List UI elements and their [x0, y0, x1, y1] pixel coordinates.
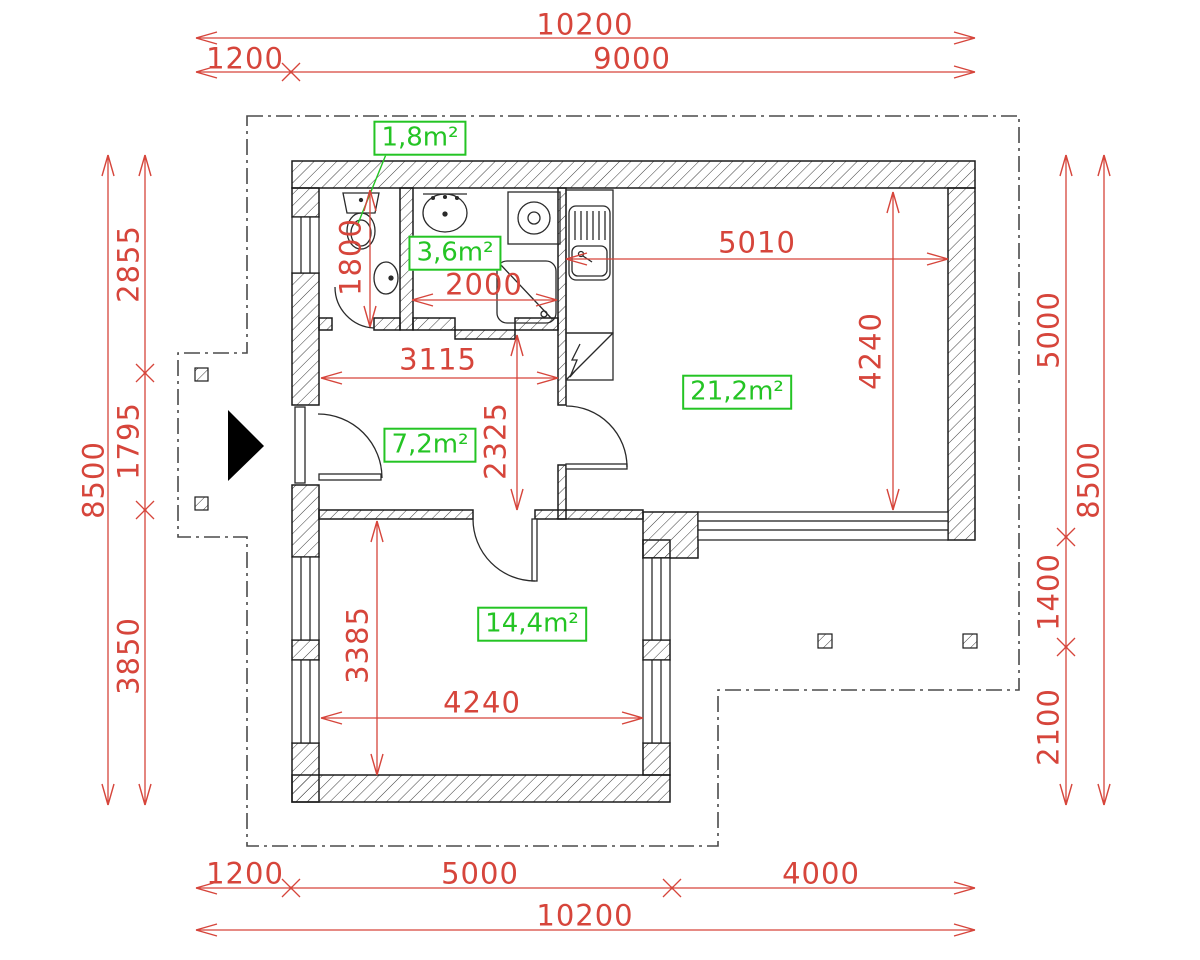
washing-machine-icon: [508, 192, 560, 244]
dim-kitchen-5010: 5010: [718, 229, 796, 258]
dim-top-9000: 9000: [593, 45, 671, 74]
dim-hall-3115: 3115: [399, 346, 477, 375]
floor-plan-drawing: [0, 0, 1200, 960]
dim-right-1400: 1400: [1035, 553, 1064, 631]
bedroom-door: [473, 519, 537, 581]
living-room-door: [566, 406, 627, 469]
windows: [292, 217, 948, 743]
dim-left-1795: 1795: [115, 402, 144, 480]
dim-top-total: 10200: [536, 11, 633, 40]
dim-bedroom-4240: 4240: [443, 689, 521, 718]
dim-hall-2325: 2325: [482, 402, 511, 480]
dim-top-1200: 1200: [206, 45, 284, 74]
dim-living-4240: 4240: [857, 312, 886, 390]
area-label-wc: 1,8m²: [373, 121, 466, 156]
area-label-bathroom: 3,6m²: [408, 236, 501, 271]
electric-panel-icon: [566, 333, 613, 380]
bath-basin-icon: [423, 194, 467, 232]
dim-bottom-4000: 4000: [782, 860, 860, 889]
dim-right-total: 8500: [1075, 441, 1104, 519]
dim-right-2100: 2100: [1035, 688, 1064, 766]
dim-right-5000: 5000: [1035, 291, 1064, 369]
area-label-hall: 7,2m²: [383, 428, 476, 463]
area-label-bedroom: 14,4m²: [477, 607, 587, 642]
entrance-arrow-icon: [228, 410, 264, 481]
entrance-door: [295, 407, 382, 483]
dim-left-3850: 3850: [115, 617, 144, 695]
dim-left-2855: 2855: [115, 225, 144, 303]
dimension-junction-dots: [144, 71, 1068, 890]
dim-bottom-5000: 5000: [441, 860, 519, 889]
wc-sink-icon: [374, 262, 398, 294]
kitchen-sink-icon: [569, 206, 610, 280]
dim-bath-2000: 2000: [445, 271, 523, 300]
walls-hatched: [292, 161, 975, 802]
dim-bottom-1200: 1200: [206, 860, 284, 889]
dim-bottom-total: 10200: [536, 902, 633, 931]
floor-plan: 10200 1200 9000 1200 5000 4000 10200 850…: [0, 0, 1200, 960]
area-label-living: 21,2m²: [682, 375, 792, 410]
dim-bedroom-3385: 3385: [344, 606, 373, 684]
dim-wc-1800: 1800: [337, 218, 366, 296]
dim-left-total: 8500: [80, 441, 109, 519]
kitchen-counter: [566, 190, 613, 333]
